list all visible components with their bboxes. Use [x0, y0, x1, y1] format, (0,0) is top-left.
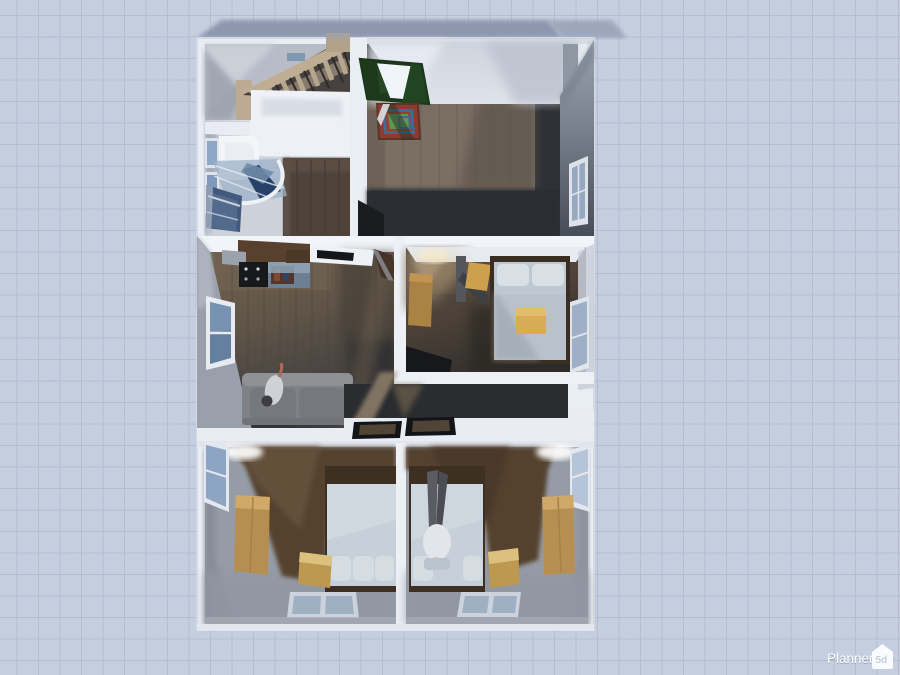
svg-text:5d: 5d: [876, 655, 888, 666]
svg-text:Planner: Planner: [827, 651, 874, 666]
